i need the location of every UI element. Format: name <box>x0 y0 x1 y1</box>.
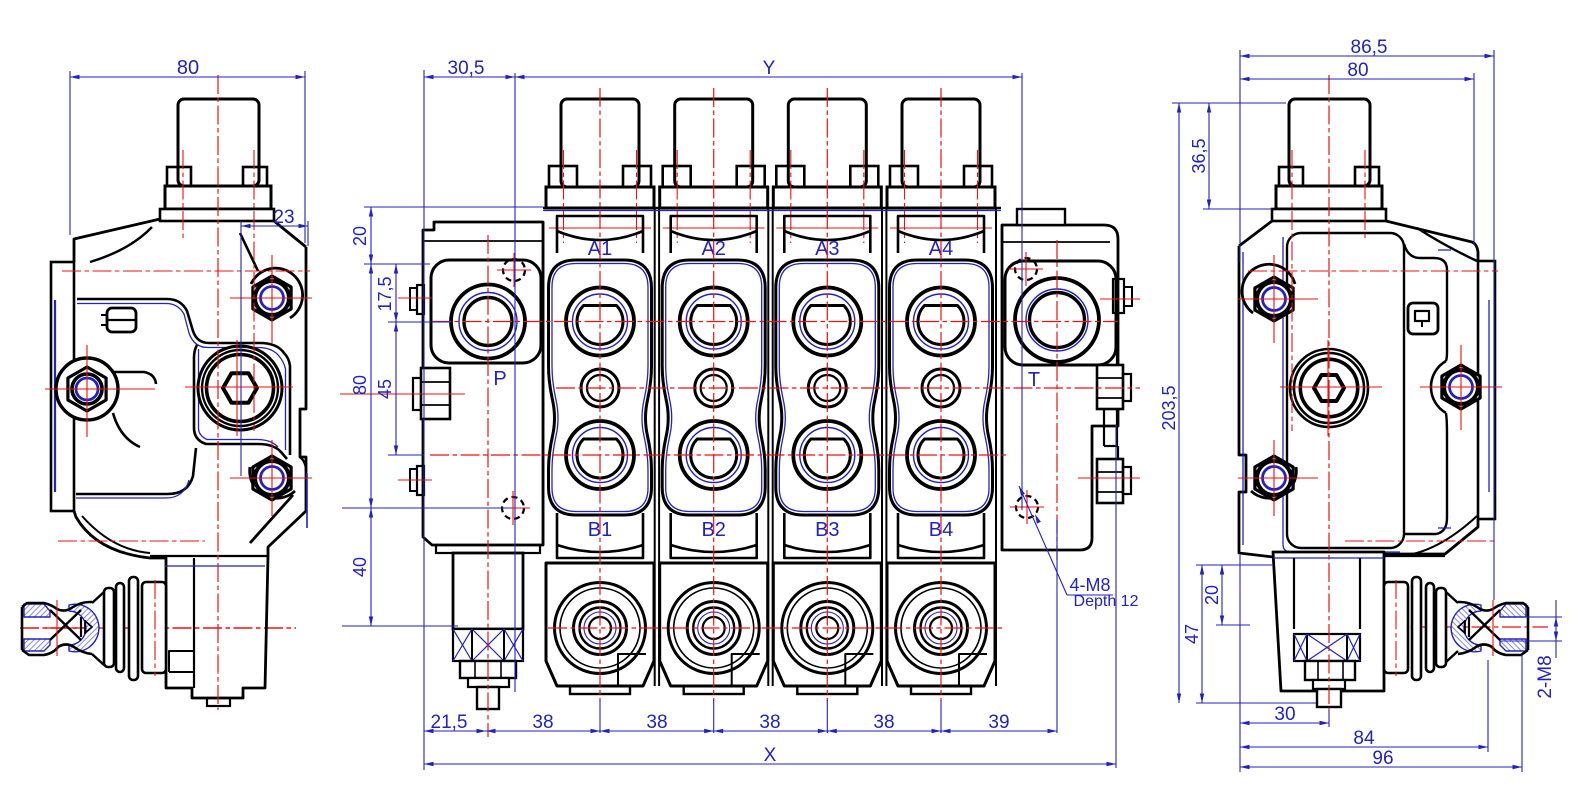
svg-text:20: 20 <box>1202 585 1222 605</box>
svg-text:4-M8: 4-M8 <box>1069 575 1110 595</box>
svg-text:2-M8: 2-M8 <box>1535 655 1556 698</box>
svg-text:86,5: 86,5 <box>1351 37 1388 58</box>
svg-text:80: 80 <box>1347 60 1368 81</box>
svg-text:17,5: 17,5 <box>375 276 395 311</box>
svg-text:30,5: 30,5 <box>448 58 485 79</box>
svg-text:38: 38 <box>873 712 894 733</box>
svg-text:23: 23 <box>273 207 294 228</box>
svg-text:45: 45 <box>375 379 395 399</box>
svg-text:P: P <box>493 368 506 390</box>
svg-text:36,5: 36,5 <box>1189 138 1209 173</box>
svg-text:47: 47 <box>1182 624 1202 644</box>
svg-text:38: 38 <box>759 712 780 733</box>
svg-text:38: 38 <box>532 712 553 733</box>
svg-text:20: 20 <box>350 226 370 246</box>
svg-text:96: 96 <box>1372 748 1393 769</box>
svg-text:38: 38 <box>646 712 667 733</box>
svg-text:39: 39 <box>988 712 1009 733</box>
svg-text:40: 40 <box>350 557 370 577</box>
svg-text:21,5: 21,5 <box>431 712 468 733</box>
svg-text:Depth 12: Depth 12 <box>1074 593 1139 610</box>
svg-text:203,5: 203,5 <box>1159 385 1179 430</box>
svg-text:X: X <box>764 745 777 766</box>
svg-text:30: 30 <box>1274 704 1295 725</box>
svg-text:Y: Y <box>763 58 776 79</box>
svg-text:84: 84 <box>1353 728 1375 749</box>
svg-text:80: 80 <box>350 375 370 395</box>
svg-text:80: 80 <box>177 57 199 79</box>
